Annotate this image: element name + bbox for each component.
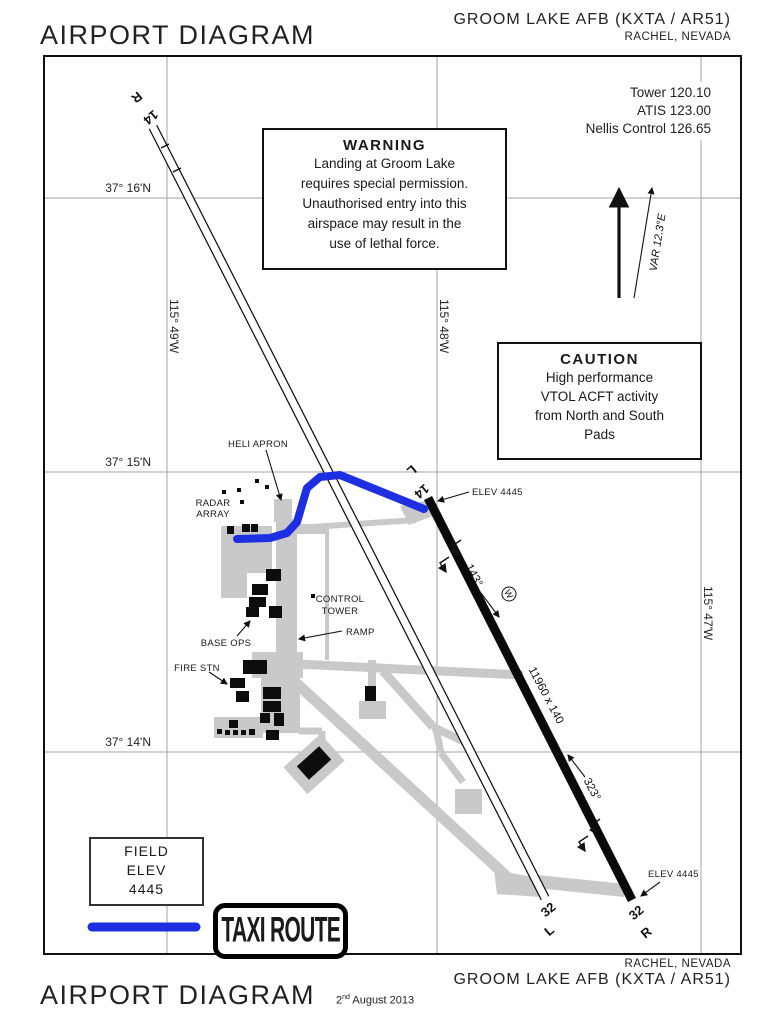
heli-apron-pad <box>274 499 292 522</box>
warning-line: use of lethal force. <box>264 234 505 254</box>
taxiways <box>294 520 523 886</box>
hook-icon <box>579 836 588 851</box>
chart-date: 2nd August 2013 <box>336 994 414 1007</box>
north-pad <box>359 701 386 719</box>
rwy-32r-side: R <box>638 923 655 941</box>
chart-date-rest: August 2013 <box>350 995 414 1007</box>
south-buildings-pad <box>214 717 263 738</box>
caution-line: VTOL ACFT activity <box>499 387 700 406</box>
warning-line: Landing at Groom Lake <box>264 154 505 174</box>
lat-label-3715: 37° 15'N <box>105 455 151 469</box>
radar-array-label-2: ARRAY <box>196 509 230 520</box>
field-elevation-box: FIELD ELEV 4445 <box>89 837 204 906</box>
control-tower-dot <box>311 594 315 598</box>
base-ops-arrow <box>237 621 250 636</box>
page-title: AIRPORT DIAGRAM <box>40 20 315 51</box>
magnetic-north-arrow-icon <box>634 188 652 298</box>
chart-date-suffix: nd <box>342 994 350 1001</box>
ramp-arrow <box>299 631 342 639</box>
rwy-14r-num: 14 <box>140 107 161 128</box>
elev-32r-arrow <box>641 882 660 896</box>
caution-title: CAUTION <box>499 351 700 368</box>
south-pad <box>455 789 482 814</box>
elev-14l-label: ELEV 4445 <box>472 487 523 498</box>
warning-box: WARNING Landing at Groom Lake requires s… <box>262 128 507 270</box>
frequency-block: Tower 120.10 ATIS 123.00 Nellis Control … <box>580 82 713 140</box>
control-tower-label-2: TOWER <box>322 606 359 617</box>
tower-frequency: Tower 120.10 <box>586 84 711 102</box>
nellis-control-frequency: Nellis Control 126.65 <box>586 120 711 138</box>
lon-label-11548: 115° 48'W <box>437 299 451 354</box>
field-elev-line: FIELD <box>91 842 202 861</box>
taxi-route-legend-box: TAXI ROUTE <box>213 903 348 959</box>
rwy-32l-side: L <box>541 922 557 939</box>
fire-stn-label: FIRE STN <box>174 663 220 674</box>
warning-line: requires special permission. <box>264 174 505 194</box>
lat-label-3716: 37° 16'N <box>105 181 151 195</box>
footer-airport-name: GROOM LAKE AFB (KXTA / AR51) <box>453 971 731 989</box>
airport-name: GROOM LAKE AFB (KXTA / AR51) <box>453 11 731 29</box>
rwy-14r-side: R <box>128 89 145 107</box>
elev-32r-label: ELEV 4445 <box>648 869 699 880</box>
magnetic-variation: VAR 12.3°E <box>619 188 669 298</box>
lon-label-11547: 115° 47'W <box>701 586 715 641</box>
w-circle-symbol: W <box>502 587 516 601</box>
rwy-32l-num: 32 <box>538 899 559 920</box>
field-elev-line: ELEV <box>91 861 202 880</box>
north-pad-building <box>365 686 376 701</box>
ramp-strip <box>276 519 297 660</box>
caution-line: High performance <box>499 368 700 387</box>
airport-location: RACHEL, NEVADA <box>625 31 731 43</box>
control-tower-label-1: CONTROL <box>316 594 365 605</box>
heli-apron-label: HELI APRON <box>228 439 288 450</box>
field-elev-line: 4445 <box>91 880 202 899</box>
ramp-label: RAMP <box>346 627 375 638</box>
radar-array-pad-south <box>221 558 247 598</box>
rwy-32r-num: 32 <box>626 902 647 923</box>
lat-label-3714: 37° 14'N <box>105 735 151 749</box>
heli-apron-arrow <box>266 450 281 500</box>
footer-title: AIRPORT DIAGRAM <box>40 980 315 1011</box>
radar-array-label-1: RADAR <box>196 498 231 509</box>
caution-box: CAUTION High performance VTOL ACFT activ… <box>497 342 702 460</box>
warning-line: Unauthorised entry into this <box>264 194 505 214</box>
base-ops-label: BASE OPS <box>201 638 251 649</box>
rwy-14l-side: L <box>404 462 420 479</box>
hook-icon <box>440 557 449 572</box>
caution-line: Pads <box>499 425 700 444</box>
atis-frequency: ATIS 123.00 <box>586 102 711 120</box>
elev-14l-arrow <box>438 492 469 501</box>
var-label: VAR 12.3°E <box>648 212 669 272</box>
caution-line: from North and South <box>499 406 700 425</box>
warning-title: WARNING <box>264 137 505 154</box>
lon-label-11549: 115° 49'W <box>167 299 181 354</box>
footer-location: RACHEL, NEVADA <box>625 958 731 970</box>
warning-line: airspace may result in the <box>264 214 505 234</box>
taxi-route-legend-label: TAXI ROUTE <box>221 911 340 951</box>
